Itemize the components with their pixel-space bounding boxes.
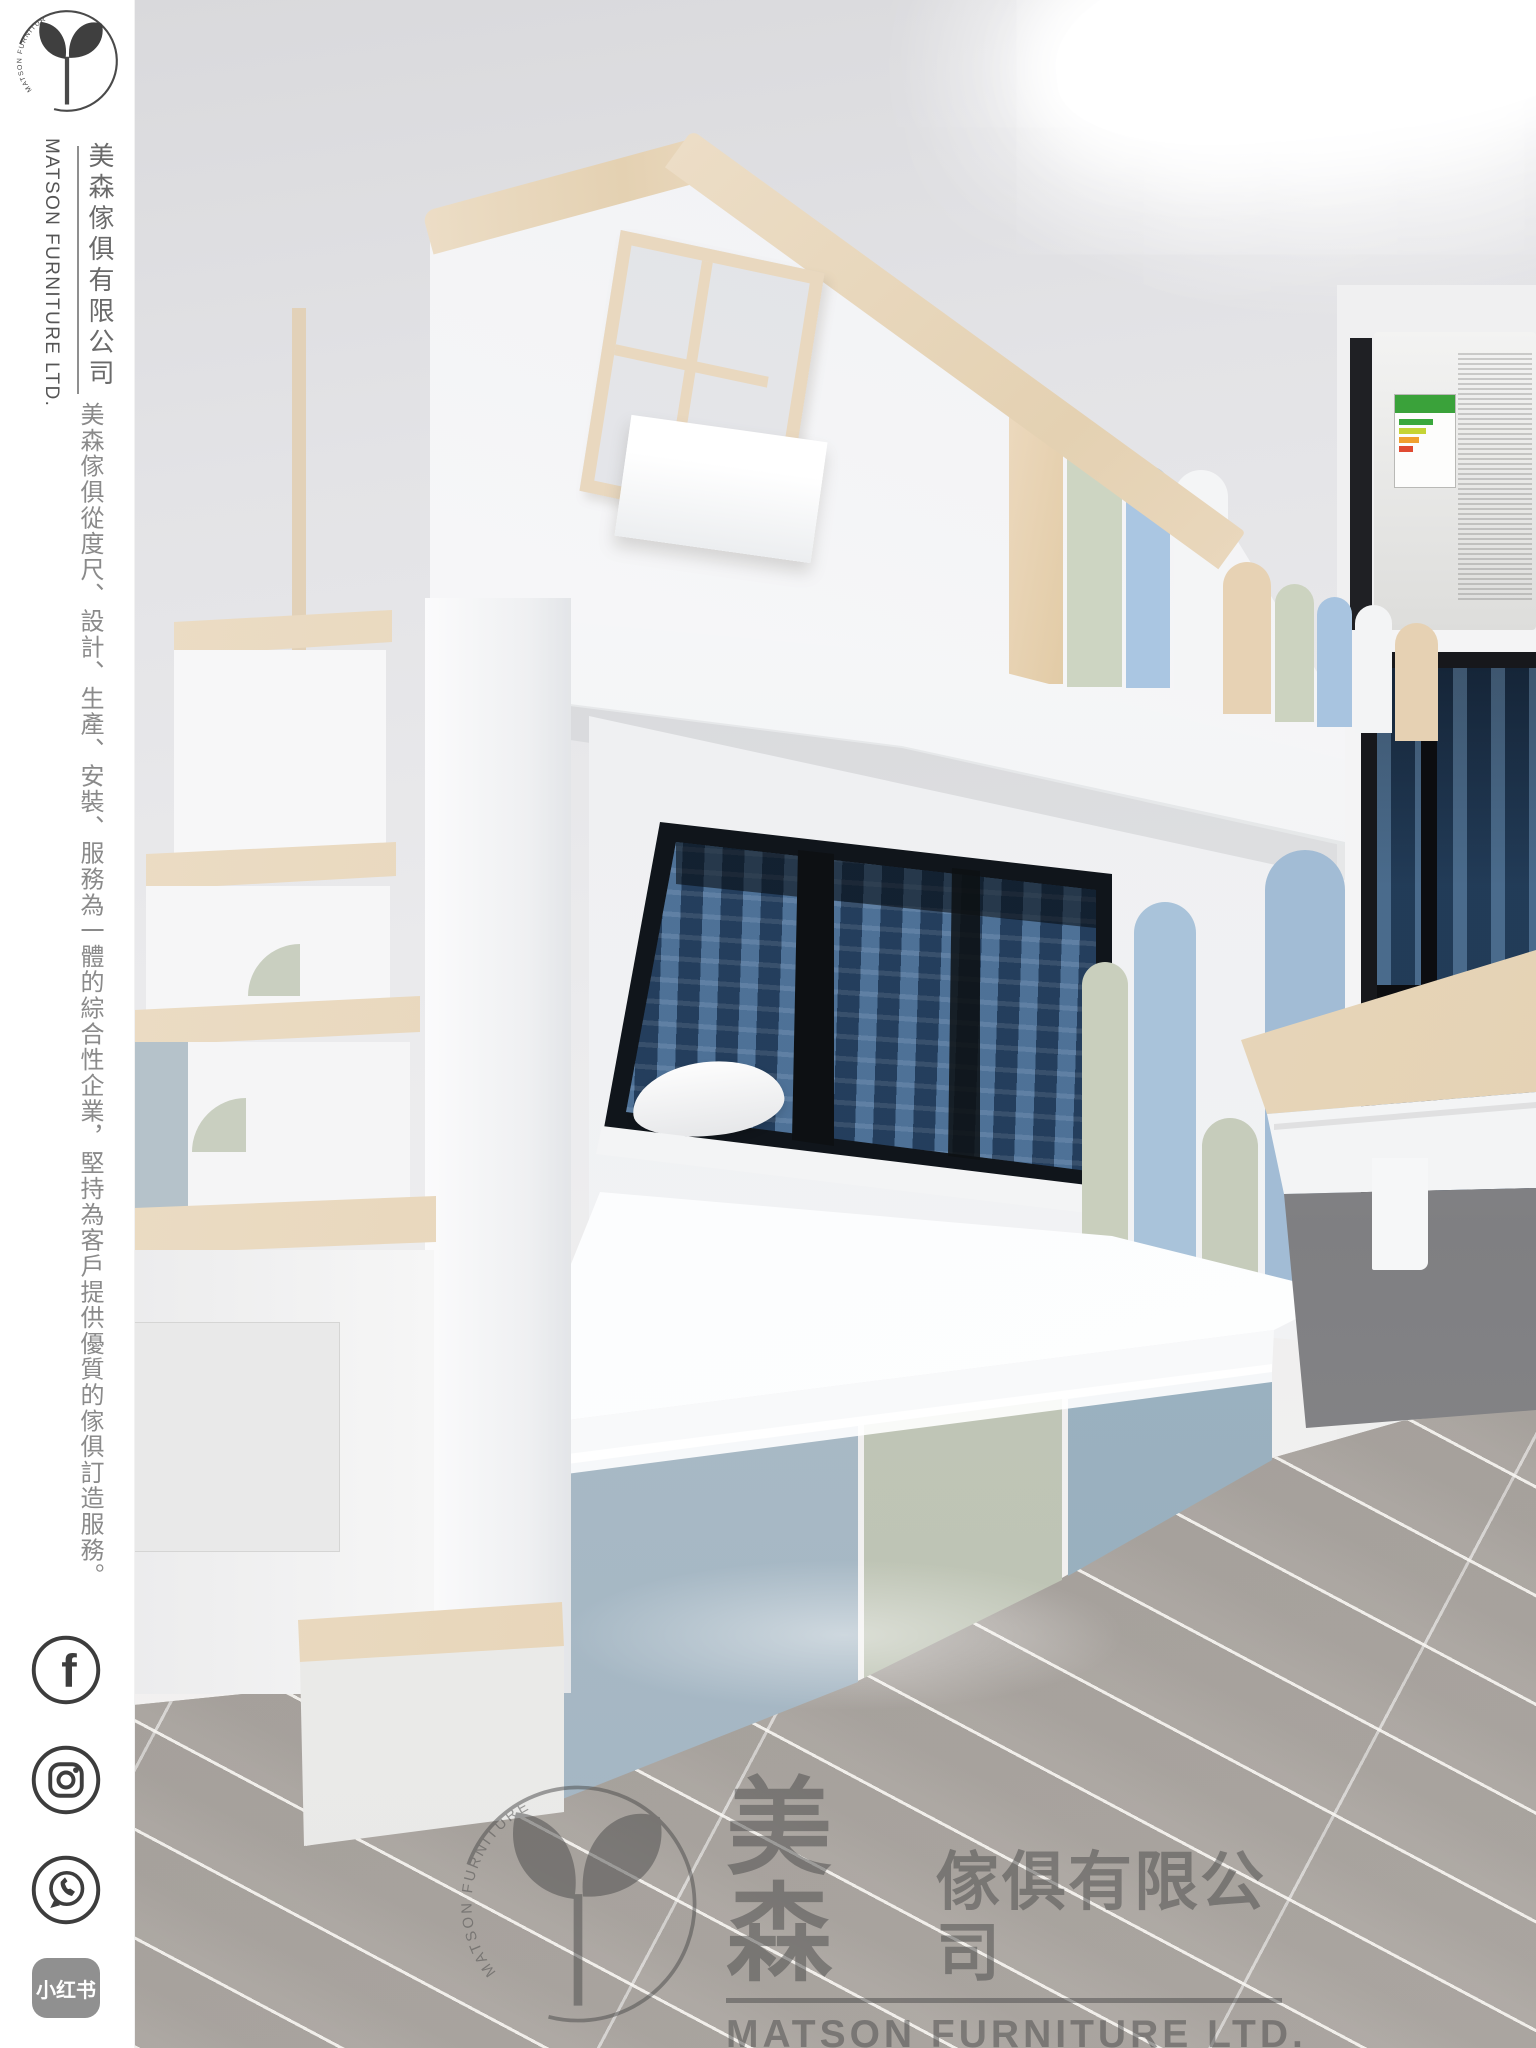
vertical-divider (77, 146, 79, 394)
matson-logo-icon: MATSON FURNITURE (14, 8, 120, 114)
company-tagline: 美森傢俱從度尺、設計、生產、安裝、服務為一體的綜合性企業，堅持為客戶提供優質的傢… (72, 402, 107, 1692)
watermark-logo-icon: MATSON FURNITURE (454, 1780, 702, 2028)
xiaohongshu-label: 小红书 (36, 1974, 96, 2003)
wall-arch-blue (1134, 902, 1196, 1298)
energy-bar-orange (1399, 437, 1419, 443)
instagram-icon (30, 1744, 102, 1816)
page: MATSON FURNITURE MATSON FURNITURE LTD. 美… (0, 0, 1536, 2048)
watermark-zh-large: 美森 (726, 1776, 924, 1988)
svg-text:f: f (61, 1645, 77, 1697)
floor-light-reflection (564, 1560, 1124, 1710)
watermark-text: 美森 傢俱有限公司 MATSON FURNITURE LTD. (726, 1776, 1286, 2048)
logo-ring-text: MATSON FURNITURE (14, 8, 48, 93)
stair-riser-1 (174, 650, 386, 854)
desk-leg-bracket (1372, 1158, 1428, 1270)
air-conditioner (1374, 332, 1536, 630)
energy-label (1394, 394, 1456, 488)
arch-picket-wood-2 (1223, 562, 1271, 714)
company-name-english: MATSON FURNITURE LTD. (40, 138, 62, 428)
xiaohongshu-icon: 小红书 (32, 1958, 100, 2018)
bed-left-stile (425, 598, 571, 1693)
watermark-en: MATSON FURNITURE LTD. (726, 2013, 1286, 2048)
energy-bar-yellow (1399, 428, 1426, 434)
wood-edge-strip (292, 308, 306, 656)
arch-picket-blue-2 (1317, 597, 1352, 727)
arch-picket-sage-2 (1275, 584, 1314, 722)
watermark: MATSON FURNITURE 美森 傢俱有限公司 MATSON FURNIT… (454, 1760, 1284, 2040)
whatsapp-icon (30, 1854, 102, 1926)
room-photo: MATSON FURNITURE 美森 傢俱有限公司 MATSON FURNIT… (134, 0, 1536, 2048)
arch-picket-wood-3 (1395, 623, 1438, 741)
energy-bar-red (1399, 446, 1413, 452)
watermark-zh-rest: 傢俱有限公司 (936, 1847, 1286, 1988)
stair-base-drawer (134, 1322, 340, 1552)
arch-picket-white-2 (1355, 605, 1392, 733)
stair-side-blue-panel (134, 1042, 188, 1208)
window-frame-slit (1350, 338, 1372, 630)
company-name-chinese: 美森傢俱有限公司 (82, 142, 119, 412)
facebook-icon: f (30, 1634, 102, 1706)
svg-text:MATSON FURNITURE: MATSON FURNITURE (14, 8, 48, 93)
ac-grille (1458, 350, 1532, 600)
energy-label-header (1395, 395, 1455, 413)
brand-sidebar: MATSON FURNITURE MATSON FURNITURE LTD. 美… (0, 0, 135, 2048)
watermark-underline (726, 1998, 1282, 2003)
energy-bar-green (1399, 419, 1433, 425)
